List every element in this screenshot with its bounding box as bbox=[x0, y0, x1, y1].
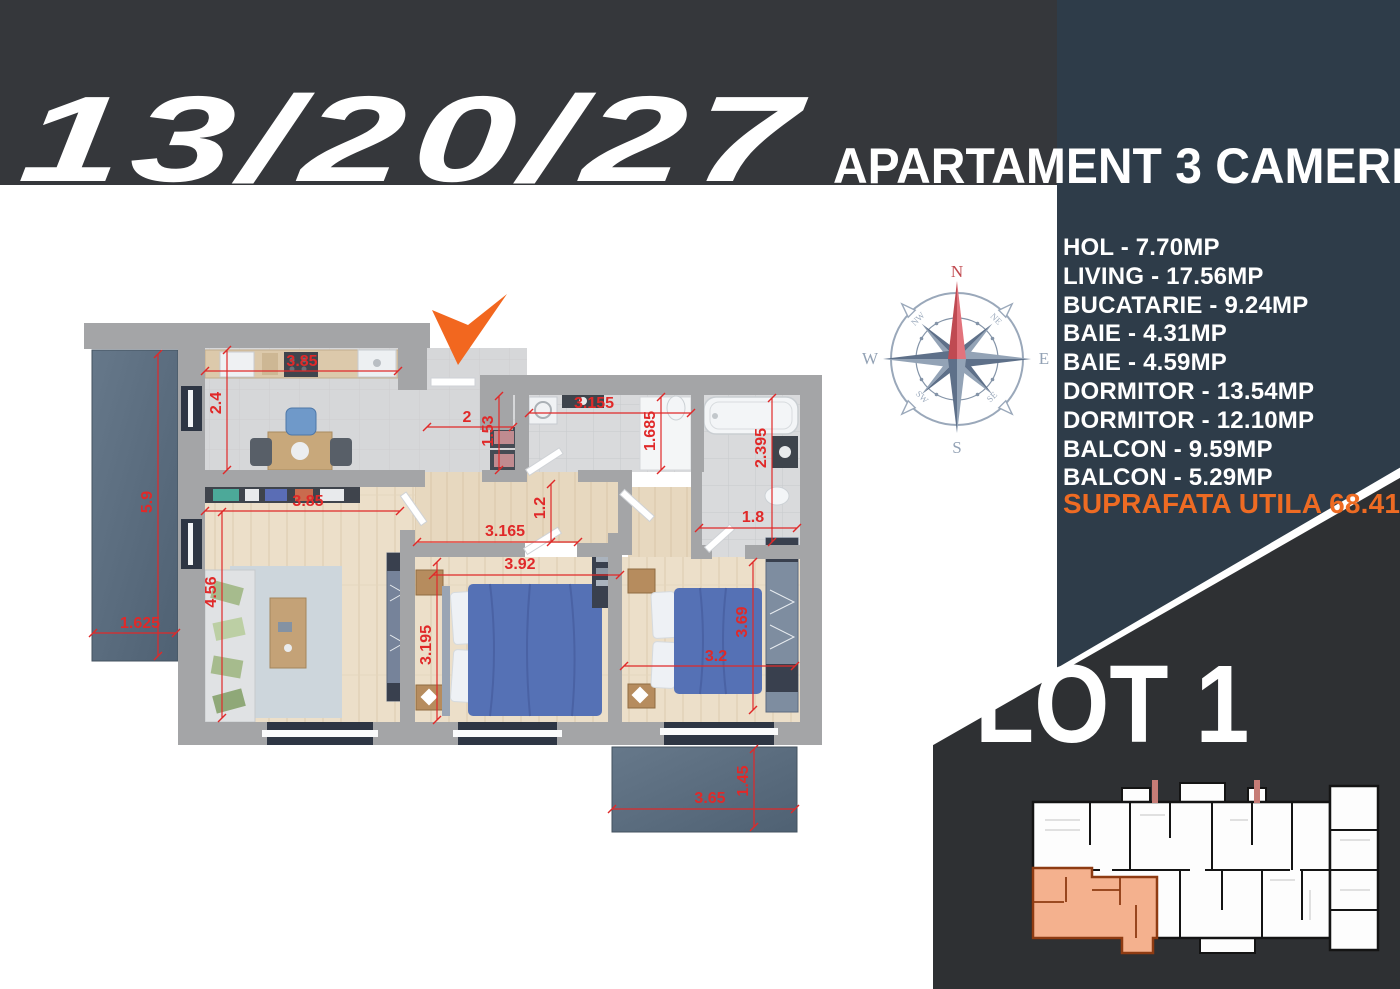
toilet-2 bbox=[765, 487, 789, 505]
compass-s: S bbox=[952, 438, 961, 457]
room-area-item: BUCATARIE - 9.24MP bbox=[1063, 292, 1314, 321]
room-area-item: BAIE - 4.31MP bbox=[1063, 320, 1314, 349]
dimension-label: 3.85 bbox=[292, 493, 323, 510]
toilet-1 bbox=[667, 396, 685, 420]
dimension-label: 1.8 bbox=[742, 509, 764, 526]
dimension-label: 1.625 bbox=[120, 615, 160, 632]
dimension-label: 3.92 bbox=[504, 556, 535, 573]
fridge bbox=[220, 352, 254, 377]
compass-rose: N E S W NE SE SW NW bbox=[862, 258, 1058, 464]
room-area-item: HOL - 7.70MP bbox=[1063, 234, 1314, 263]
apartment-brochure-page: { "header": { "unit_numbers": "13/20/27"… bbox=[0, 0, 1400, 989]
room-area-item: DORMITOR - 12.10MP bbox=[1063, 407, 1314, 436]
dimension-label: 3.155 bbox=[574, 395, 614, 412]
dimension-label: 3.2 bbox=[705, 648, 727, 665]
coffee-table bbox=[270, 598, 306, 668]
room-area-item: DORMITOR - 13.54MP bbox=[1063, 378, 1314, 407]
dimension-label: 4.56 bbox=[203, 576, 220, 607]
desk-chair bbox=[286, 408, 316, 435]
building-key-plan bbox=[1025, 772, 1385, 962]
compass-star-cardinals bbox=[883, 350, 1031, 433]
compass-n: N bbox=[951, 262, 963, 281]
compass-se: SE bbox=[985, 389, 1000, 404]
dimension-label: 1.45 bbox=[735, 765, 752, 796]
compass-e: E bbox=[1039, 349, 1049, 368]
compass-sw: SW bbox=[914, 389, 931, 406]
bathtub bbox=[704, 397, 798, 434]
compass-w: W bbox=[862, 349, 879, 368]
room-area-item: LIVING - 17.56MP bbox=[1063, 263, 1314, 292]
dimension-label: 1.2 bbox=[532, 497, 549, 519]
highlighted-apartment bbox=[1033, 868, 1157, 953]
bed-2 bbox=[674, 588, 762, 694]
dimension-label: 3.165 bbox=[485, 523, 525, 540]
dimension-label: 1.53 bbox=[480, 415, 497, 446]
dimension-label: 5.9 bbox=[139, 491, 156, 513]
room-area-item: BALCON - 9.59MP bbox=[1063, 436, 1314, 465]
dimension-label: 3.69 bbox=[734, 606, 751, 637]
bed-1 bbox=[468, 584, 602, 716]
page-title: APARTAMENT 3 CAMERE bbox=[833, 141, 1400, 191]
lot-label: LOT 1 bbox=[975, 650, 1249, 760]
nightstand bbox=[628, 569, 655, 593]
floor-plan: 3.852.45.91.6253.854.5621.533.1551.6852.… bbox=[75, 290, 835, 850]
room-area-item: BAIE - 4.59MP bbox=[1063, 349, 1314, 378]
room-area-list: HOL - 7.70MPLIVING - 17.56MPBUCATARIE - … bbox=[1063, 234, 1314, 493]
dimension-label: 1.685 bbox=[642, 411, 659, 451]
dimension-label: 2.4 bbox=[208, 392, 225, 414]
dimension-label: 2 bbox=[463, 409, 472, 426]
dimension-label: 3.195 bbox=[418, 625, 435, 665]
total-area-label: SUPRAFATA UTILA 68.41 MP bbox=[1063, 488, 1400, 520]
dimension-label: 3.85 bbox=[286, 353, 317, 370]
unit-numbers: 13/20/27 bbox=[15, 78, 812, 200]
dimension-label: 2.395 bbox=[753, 428, 770, 468]
dimension-label: 3.65 bbox=[694, 790, 725, 807]
nightstand bbox=[416, 570, 443, 595]
